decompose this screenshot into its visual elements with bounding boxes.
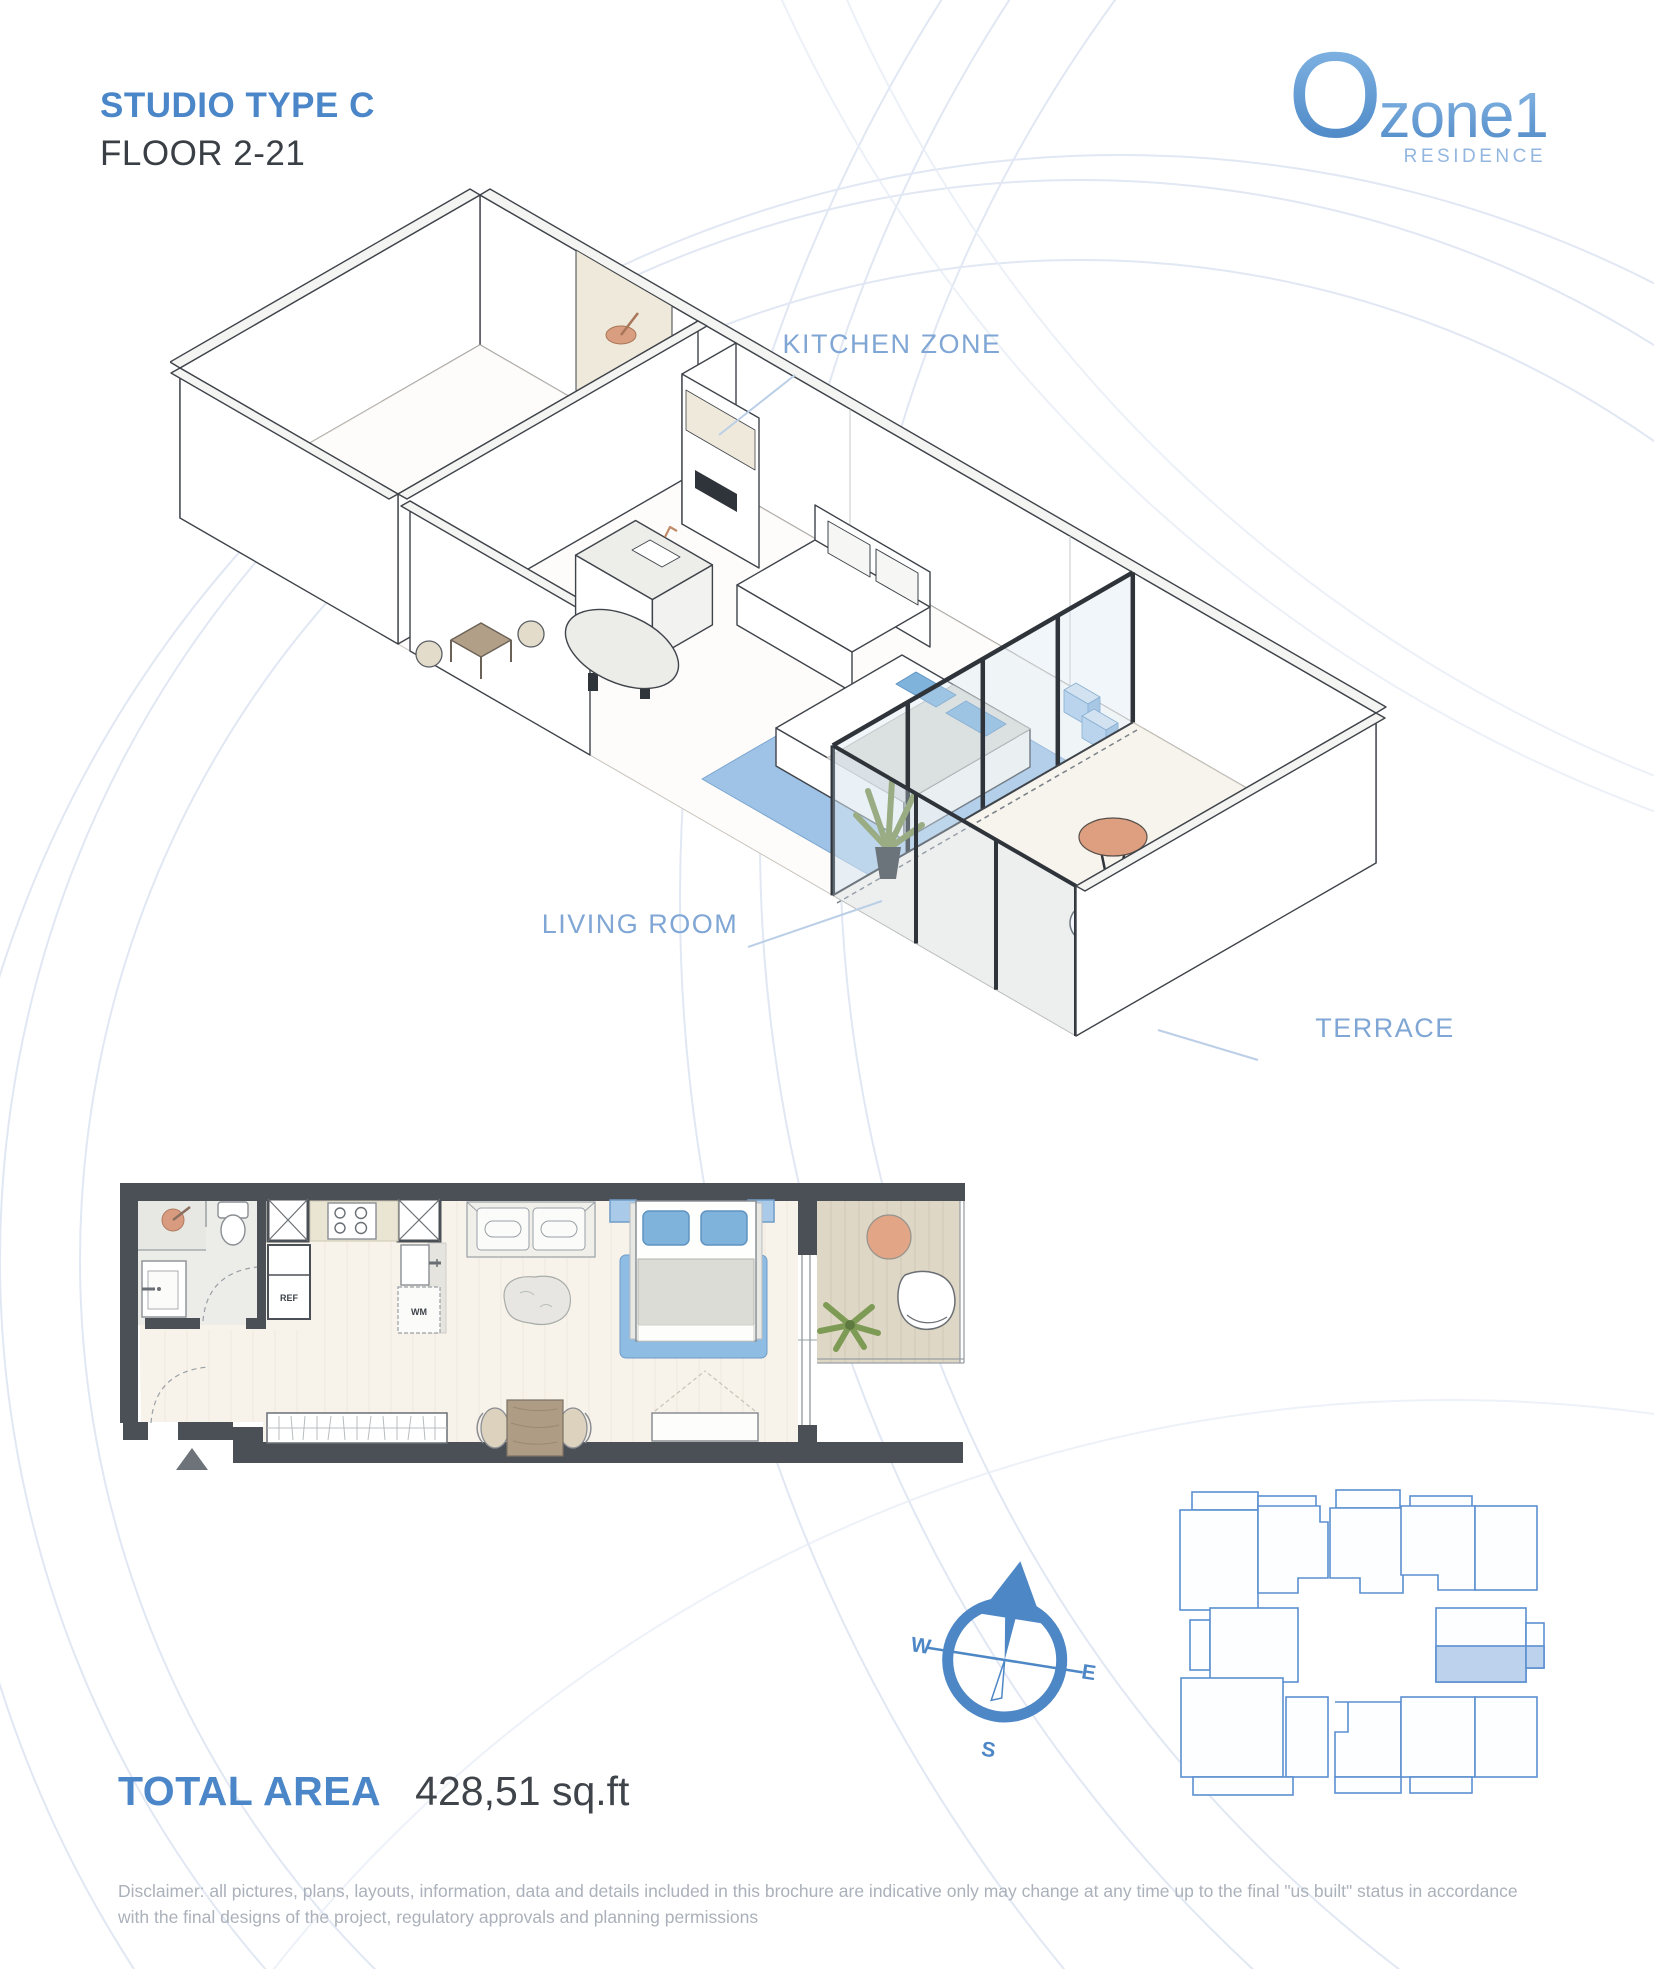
entry-arrow-icon xyxy=(176,1448,208,1470)
fridge-label: REF xyxy=(280,1293,299,1303)
floor-plan-2d: REF WM xyxy=(115,1175,995,1480)
total-area: TOTAL AREA 428,51 sq.ft xyxy=(118,1768,629,1815)
compass-icon: N W E S xyxy=(890,1540,1120,1770)
page-title: STUDIO TYPE C xyxy=(100,86,375,126)
compass-south: S xyxy=(980,1738,997,1763)
washer-label: WM xyxy=(411,1307,427,1317)
compass-west: W xyxy=(909,1633,932,1659)
disclaimer: Disclaimer: all pictures, plans, layouts… xyxy=(118,1878,1548,1931)
disclaimer-line-1: Disclaimer: all pictures, plans, layouts… xyxy=(118,1878,1548,1904)
terrace-label: TERRACE xyxy=(1315,1013,1455,1043)
iso-floor-plan: KITCHEN ZONE LIVING ROOM TERRACE xyxy=(170,185,1550,1075)
key-plan xyxy=(1128,1430,1548,1805)
living-room-label: LIVING ROOM xyxy=(542,909,739,939)
brand-logo: Ozone1 RESIDENCE xyxy=(1268,48,1548,168)
kitchen-zone-label: KITCHEN ZONE xyxy=(782,329,1001,359)
logo-mark: O xyxy=(1288,48,1383,143)
total-area-label: TOTAL AREA xyxy=(118,1768,381,1815)
compass-east: E xyxy=(1080,1660,1097,1685)
brochure-page: STUDIO TYPE C FLOOR 2-21 Ozone1 RESIDENC… xyxy=(0,0,1654,1969)
highlighted-unit xyxy=(1436,1646,1544,1682)
logo-name: zone1 xyxy=(1379,78,1548,152)
disclaimer-line-2: with the final designs of the project, r… xyxy=(118,1904,1548,1930)
floor-range: FLOOR 2-21 xyxy=(100,134,305,174)
total-area-value: 428,51 sq.ft xyxy=(415,1768,629,1815)
